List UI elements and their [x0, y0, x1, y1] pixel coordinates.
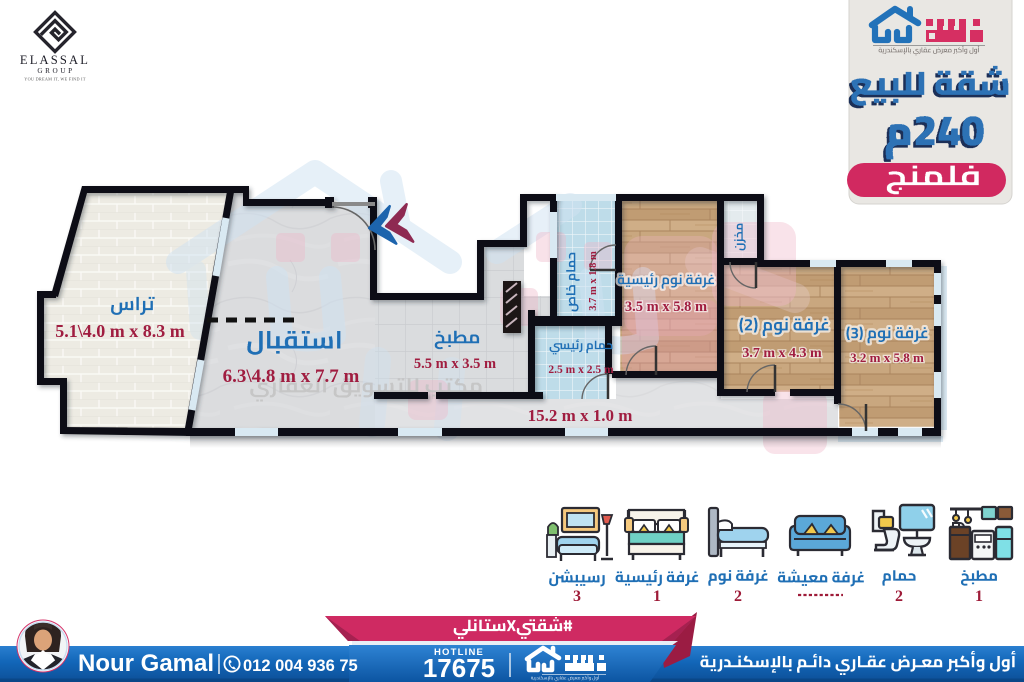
svg-text:3: 3 [573, 588, 581, 605]
svg-text:3.5 m x 5.8 m: 3.5 m x 5.8 m [625, 299, 707, 315]
svg-text:3.2 m x 5.8 m: 3.2 m x 5.8 m [850, 350, 924, 365]
svg-text:GROUP: GROUP [37, 67, 74, 75]
svg-text:012 004 936 75: 012 004 936 75 [243, 657, 358, 675]
svg-text:3.7 m x 4.3 m: 3.7 m x 4.3 m [742, 346, 822, 361]
svg-text:1: 1 [975, 588, 983, 605]
svg-text:6.3\4.8 m x 7.7 m: 6.3\4.8 m x 7.7 m [223, 366, 360, 387]
svg-text:15.2 m x 1.0 m: 15.2 m x 1.0 m [528, 406, 633, 425]
svg-text:Nour Gamal: Nour Gamal [78, 650, 214, 677]
svg-text:5.1\4.0 m x 8.3 m: 5.1\4.0 m x 8.3 m [55, 321, 185, 341]
svg-text:2: 2 [734, 588, 742, 605]
svg-text:17675: 17675 [423, 653, 495, 682]
svg-text:2.5 m x 2.5 m: 2.5 m x 2.5 m [548, 364, 614, 376]
svg-text:2: 2 [895, 588, 903, 605]
svg-text:5.5 m x 3.5 m: 5.5 m x 3.5 m [414, 356, 496, 372]
svg-text:3.7 m x 1.8 m: 3.7 m x 1.8 m [588, 251, 599, 311]
svg-text:YOU DREAM IT, WE FIND IT: YOU DREAM IT, WE FIND IT [24, 77, 86, 83]
svg-text:ELASSAL: ELASSAL [20, 53, 90, 67]
svg-text:1: 1 [653, 588, 661, 605]
